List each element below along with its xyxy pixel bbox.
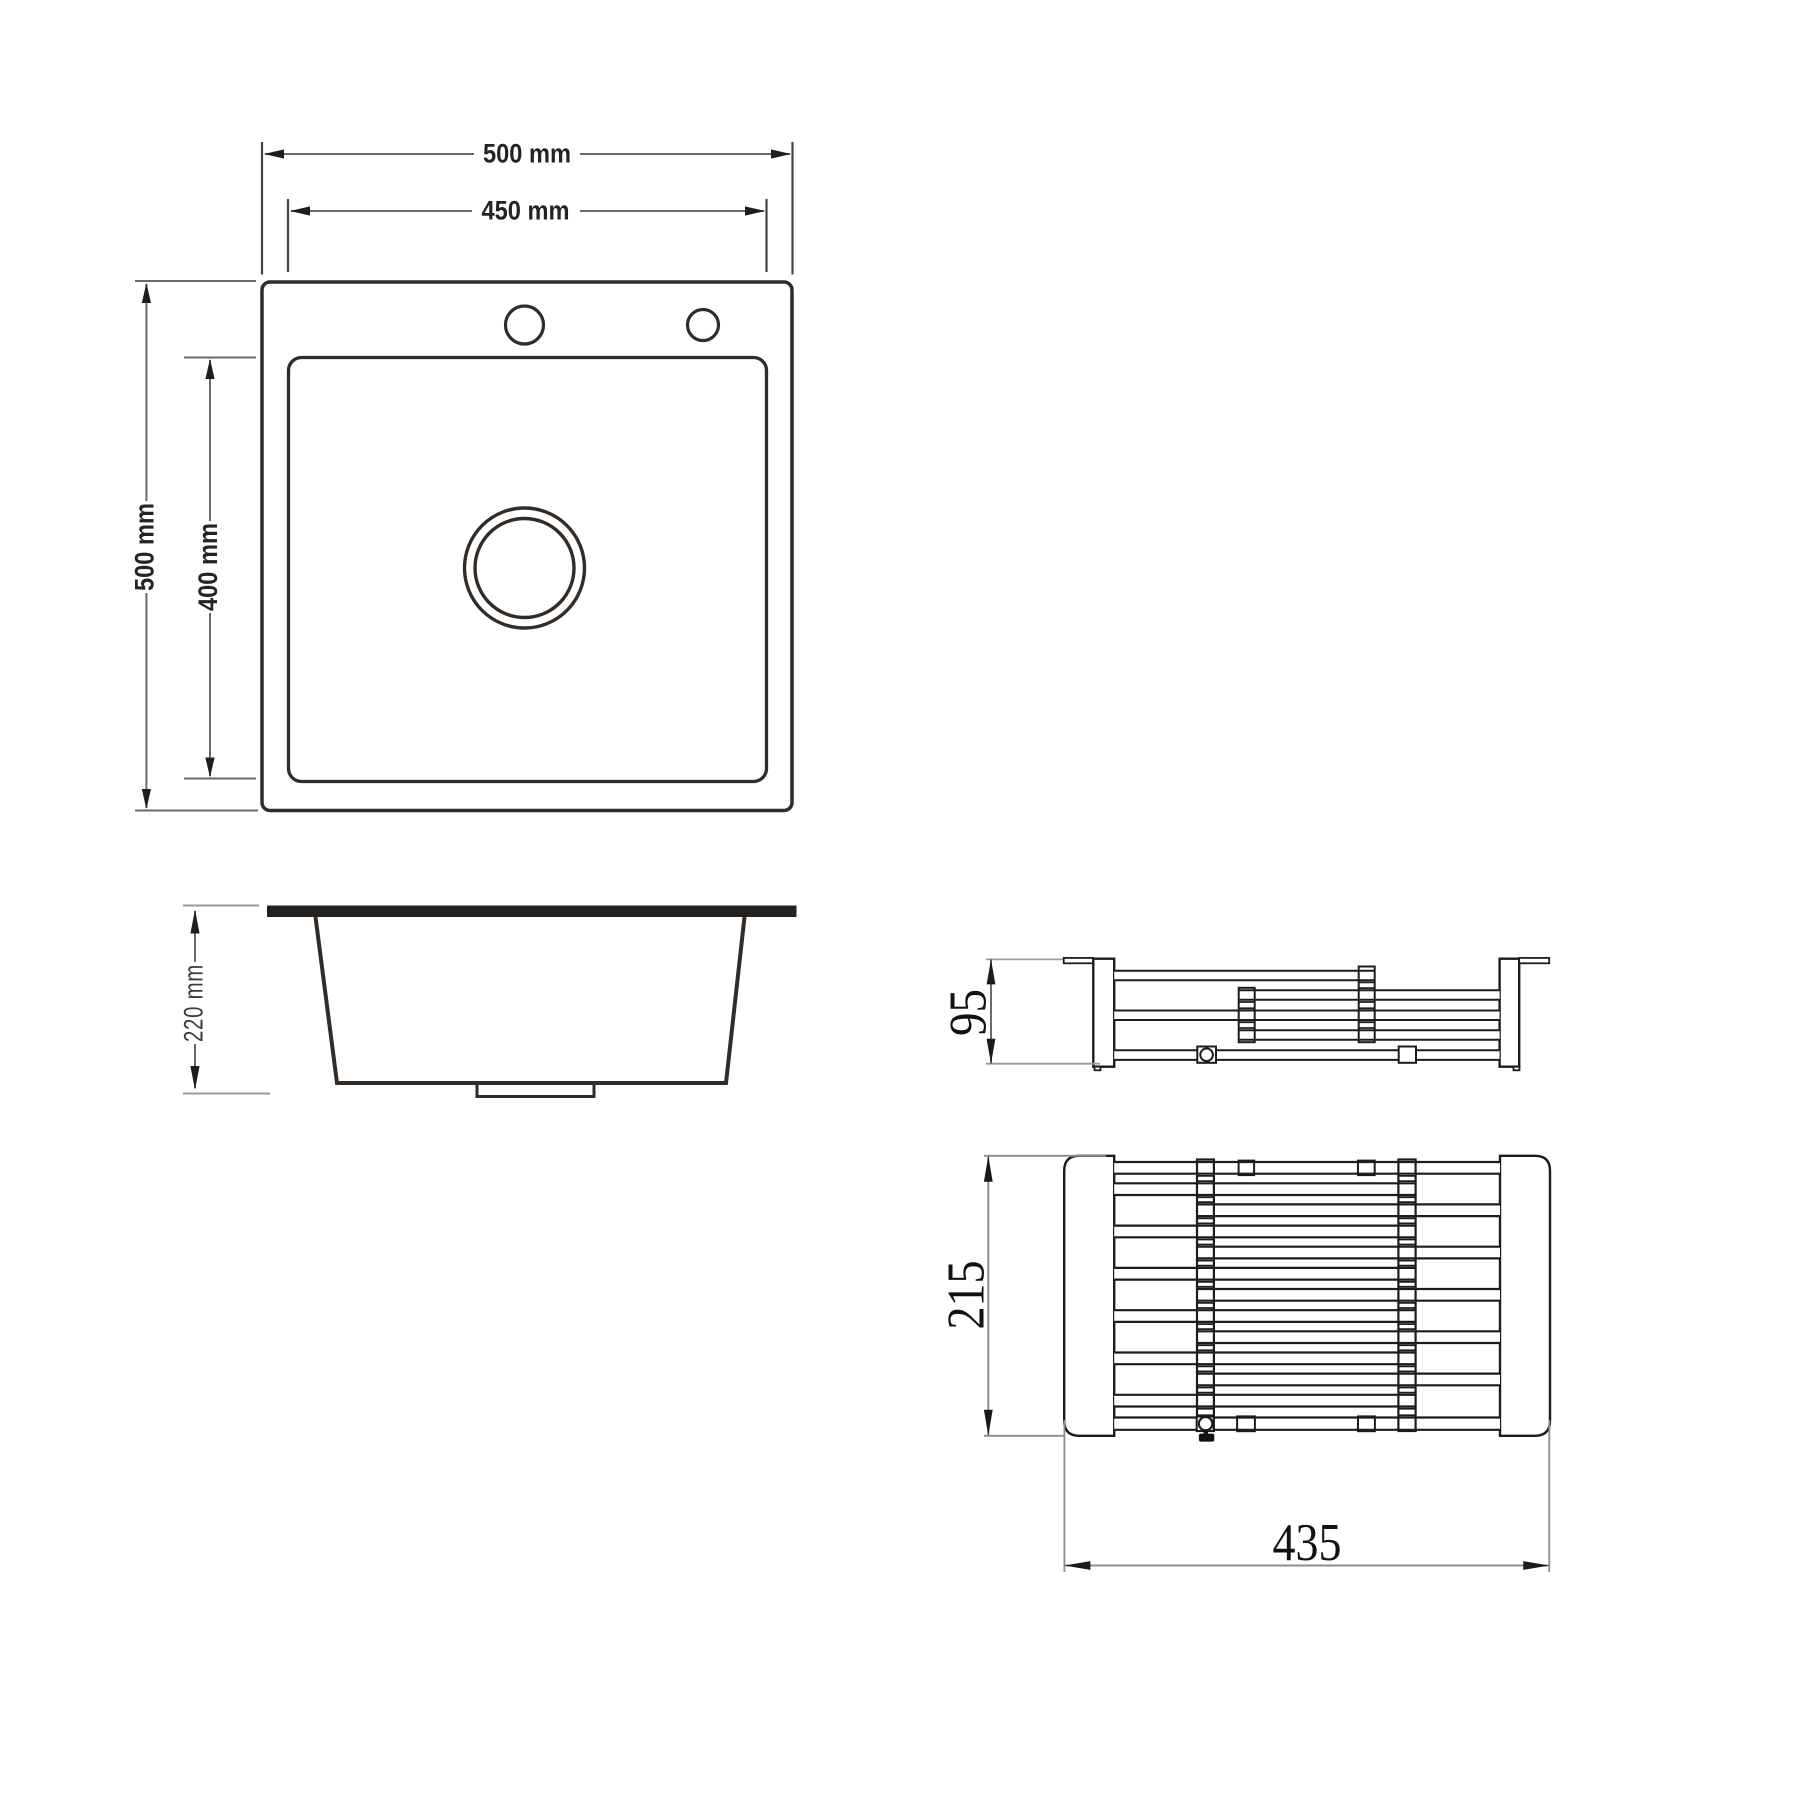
svg-text:400 mm: 400 mm: [193, 523, 223, 611]
svg-text:450 mm: 450 mm: [482, 196, 570, 226]
svg-text:95: 95: [940, 989, 998, 1036]
svg-text:500 mm: 500 mm: [483, 139, 571, 169]
svg-text:435: 435: [1273, 1514, 1342, 1572]
svg-text:500 mm: 500 mm: [130, 503, 160, 591]
svg-text:215: 215: [938, 1261, 996, 1330]
svg-text:220 mm: 220 mm: [179, 964, 209, 1042]
